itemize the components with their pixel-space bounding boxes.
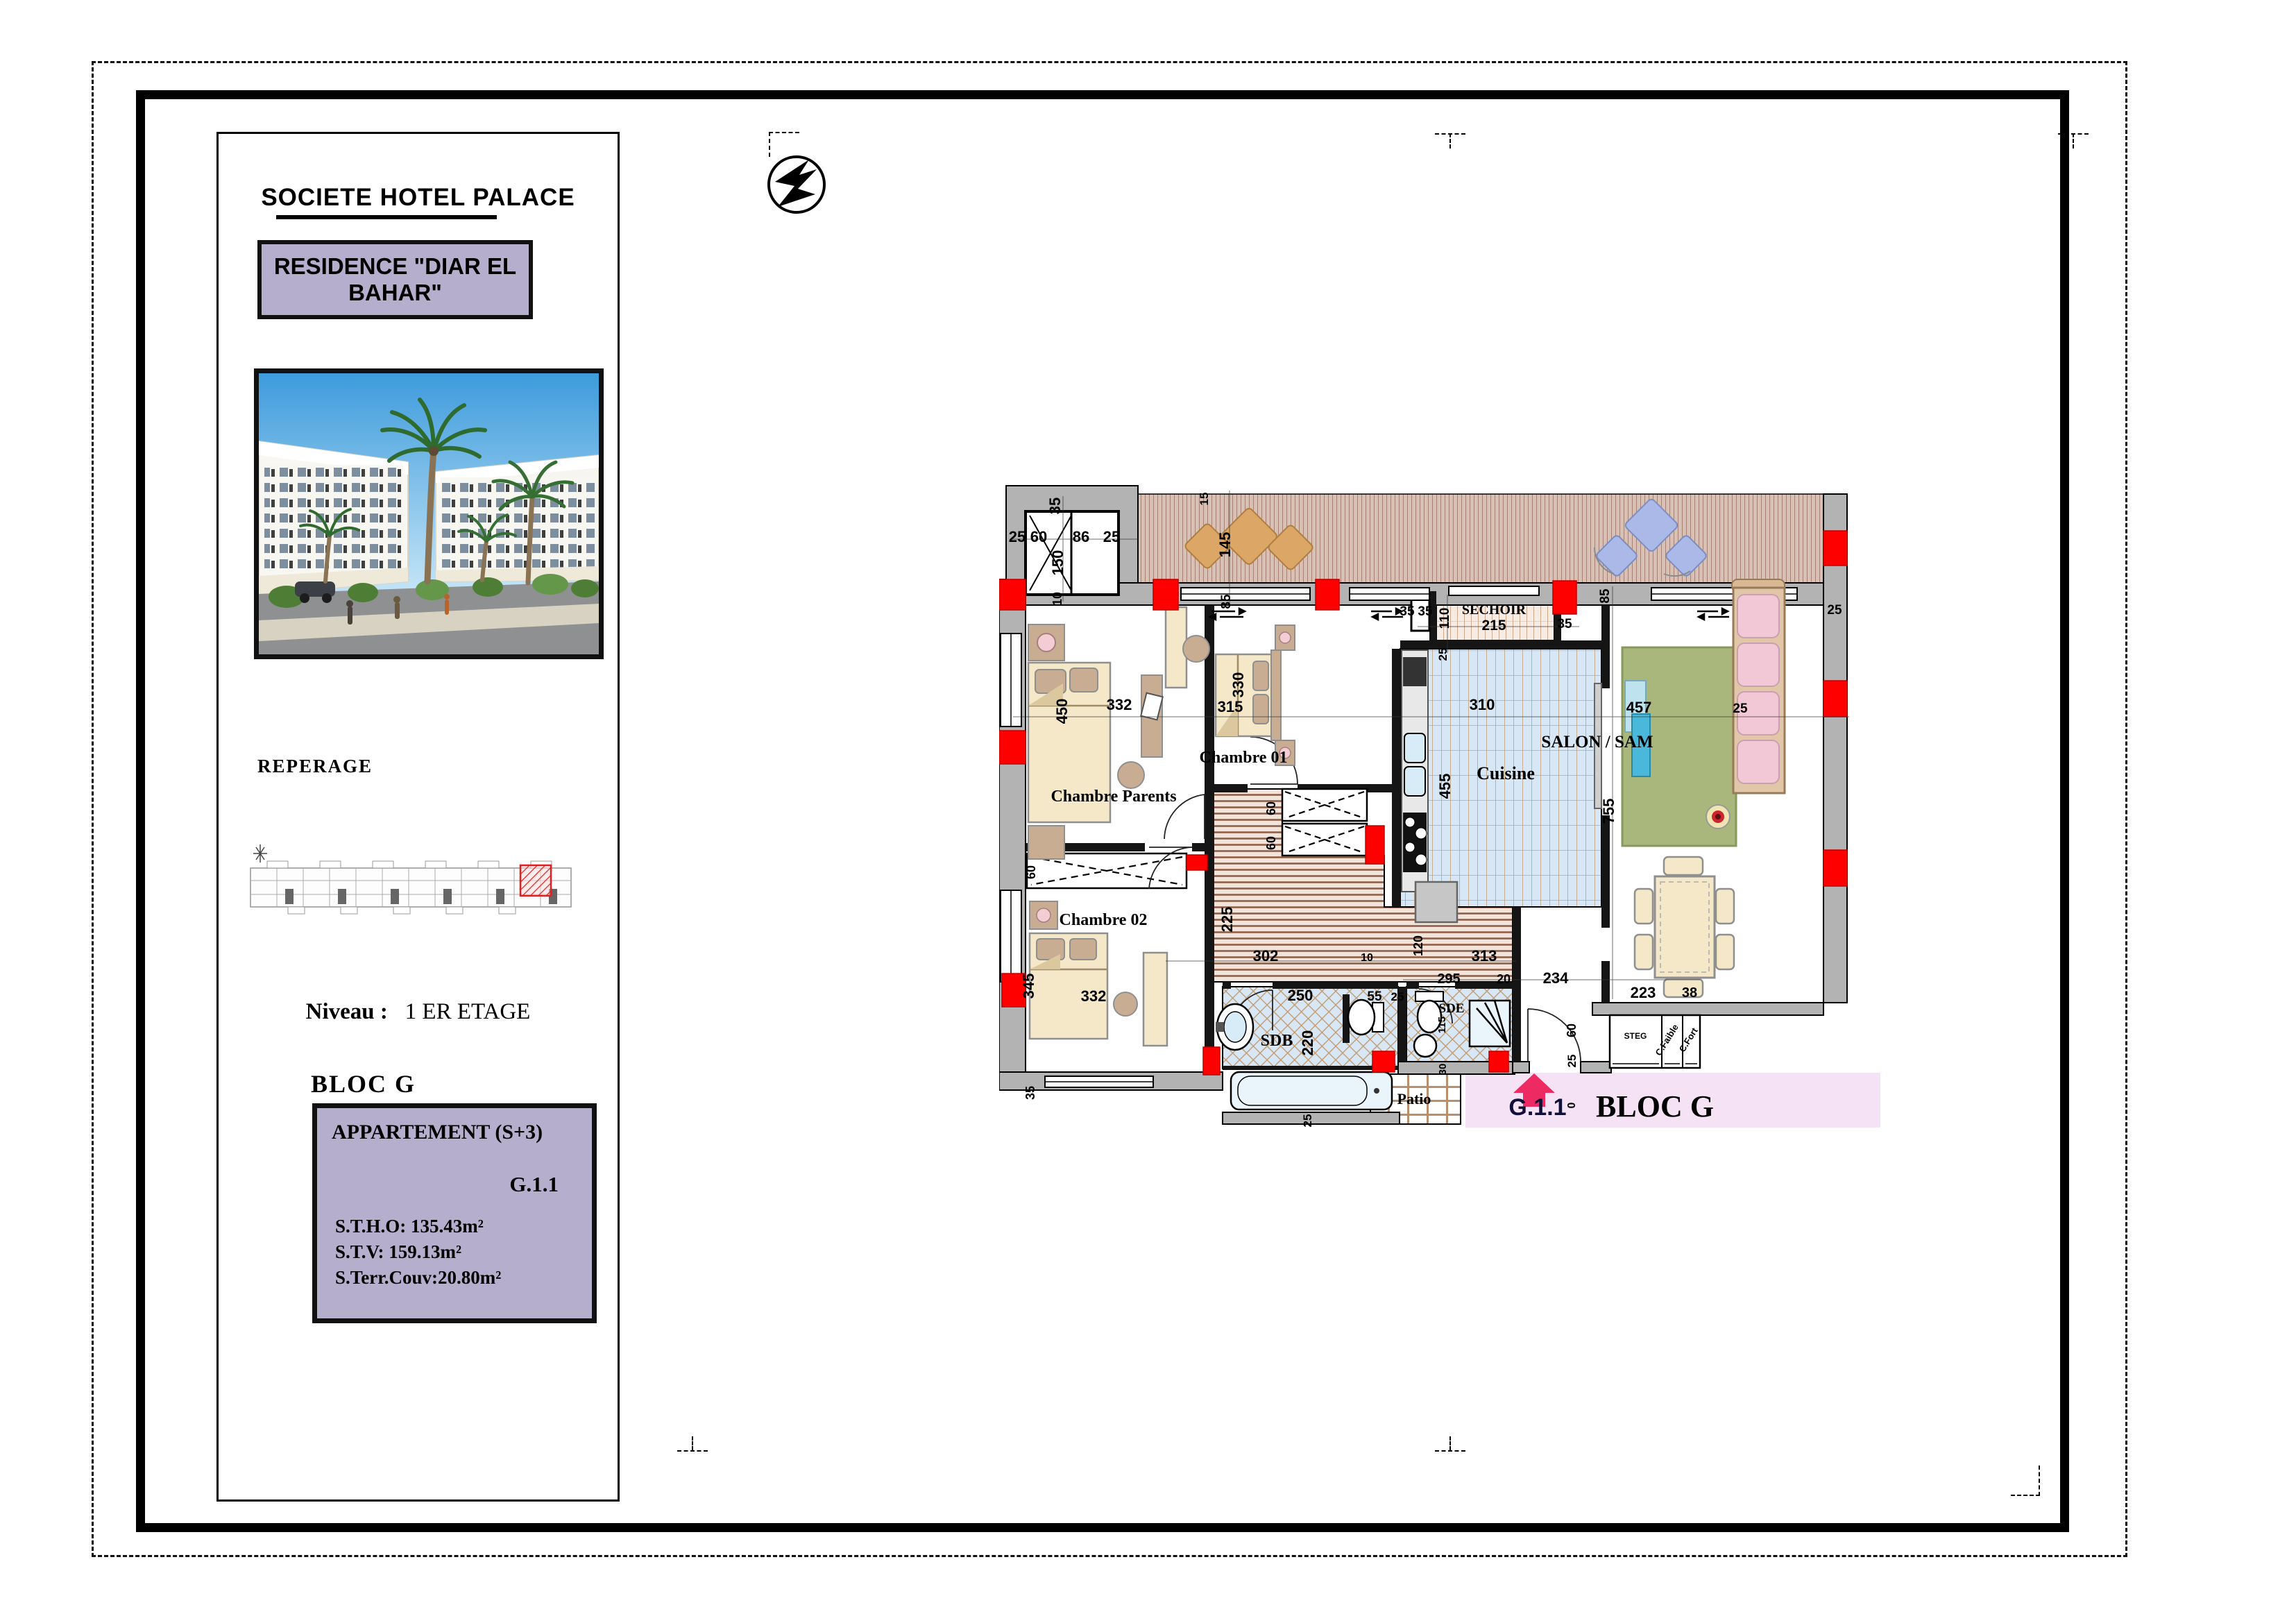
drawing-sheet: SOCIETE HOTEL PALACE RESIDENCE "DIAR EL …: [0, 0, 2296, 1623]
apartment-stv: S.T.V: 159.13m²: [335, 1239, 501, 1265]
kitchen-appliance: [1403, 657, 1427, 686]
nightstand: [1028, 826, 1064, 859]
building-left: [259, 441, 408, 594]
plan-label: 25: [1301, 1114, 1314, 1128]
plan-label: 225: [1218, 907, 1236, 933]
salon-furniture: [1622, 579, 1785, 997]
plan-label: 60: [1264, 801, 1278, 815]
plan-label: 85: [1598, 588, 1613, 604]
title-panel: SOCIETE HOTEL PALACE RESIDENCE "DIAR EL …: [216, 132, 620, 1502]
plan-label: Patio: [1397, 1090, 1431, 1107]
dining-set: [1635, 857, 1734, 997]
plan-label: 457: [1626, 699, 1652, 716]
plan-label: 295: [1437, 971, 1460, 987]
plan-label: 35: [1400, 604, 1415, 619]
reg-mark-bottom-left: [677, 1450, 708, 1452]
plan-label: 332: [1081, 987, 1107, 1005]
north-compass-icon: [763, 151, 830, 218]
plan-label: 86: [1073, 528, 1089, 545]
building-rendering-art: [259, 373, 599, 654]
wardrobe: [1143, 953, 1167, 1046]
niveau-value: 1 ER ETAGE: [405, 999, 531, 1024]
plan-label: 455: [1436, 774, 1454, 799]
plan-label: SDE: [1439, 1001, 1465, 1016]
reg-mark-bottom-mid: [1435, 1450, 1465, 1452]
plan-label: 450: [1053, 699, 1071, 724]
floor-plan: Chambre ParentsChambre 01Chambre 02Cuisi…: [999, 475, 1880, 1128]
plan-label: 330: [1230, 672, 1247, 698]
wall-east: [1823, 494, 1847, 1003]
apartment-stho: S.T.H.O: 135.43m²: [335, 1214, 501, 1239]
round-sink: [1414, 1035, 1436, 1057]
plan-label: 20: [1497, 972, 1511, 986]
strip-buildings: [250, 861, 571, 914]
reg-mark-bottom-mid-tick: [1449, 1436, 1451, 1450]
plan-label: 332: [1107, 696, 1132, 713]
wall-salon-south: [1592, 1003, 1823, 1015]
plan-label: 60: [1264, 836, 1278, 850]
plan-label: STEG: [1624, 1031, 1647, 1041]
apartment-info-box: APPARTEMENT (S+3) G.1.1 S.T.H.O: 135.43m…: [312, 1103, 597, 1323]
plan-label: 315: [1218, 698, 1243, 715]
plan-label: 60: [1565, 1023, 1579, 1037]
plan-label: 35: [1046, 498, 1064, 514]
apartment-code: G.1.1: [509, 1172, 559, 1197]
chair: [1114, 992, 1137, 1016]
toilet: [1348, 1000, 1375, 1035]
apartment-title: APPARTEMENT (S+3): [332, 1121, 543, 1144]
plan-label: 85: [1219, 594, 1234, 609]
fridge: [1415, 882, 1457, 922]
chambre-parents-furniture: [1028, 624, 1163, 859]
niveau-line: Niveau : 1 ER ETAGE: [219, 999, 618, 1025]
dining-table: [1655, 876, 1715, 978]
plan-label: 220: [1299, 1030, 1316, 1056]
plan-label: 215: [1481, 618, 1506, 634]
plan-label: 25: [1009, 528, 1026, 545]
plan-label: 25: [1391, 990, 1404, 1003]
plan-label: 15: [1198, 493, 1211, 506]
plan-label: 110: [1438, 608, 1452, 629]
bloc-label: BLOC G: [311, 1069, 416, 1098]
plan-label: 35: [1557, 617, 1572, 631]
plan-label: 35: [1418, 604, 1433, 619]
plan-label: Chambre 02: [1060, 911, 1148, 929]
plan-label: 25: [1103, 528, 1120, 545]
plan-label: 345: [1020, 974, 1037, 999]
company-underline: [276, 215, 497, 219]
plan-label: 310: [1470, 696, 1495, 713]
plan-label: SDB: [1261, 1032, 1293, 1050]
niveau-label: Niveau :: [306, 999, 388, 1024]
plan-label: 60: [1030, 528, 1047, 545]
reperage-strip-art: [246, 842, 579, 921]
bathtub: [1231, 1072, 1392, 1110]
strip-highlight-unit: [520, 865, 551, 896]
plan-label: 120: [1411, 935, 1425, 956]
plan-label: 25: [1733, 702, 1748, 716]
plan-label: Cuisine: [1477, 763, 1535, 783]
technical-shaft: [1026, 511, 1119, 595]
plan-label: 0: [1566, 1102, 1578, 1108]
reg-mark-top-mid-tick: [1449, 133, 1451, 148]
plan-label: 55: [1367, 989, 1382, 1004]
plan-label: G.1.1: [1508, 1094, 1566, 1121]
apartment-sterr: S.Terr.Couv:20.80m²: [335, 1265, 501, 1291]
plan-label: 10: [1051, 592, 1064, 606]
kitchen-sink: [1404, 767, 1425, 796]
plan-label: 755: [1600, 799, 1617, 824]
reperage-strip: [246, 842, 579, 921]
reg-mark-bottom-left-tick: [692, 1436, 693, 1450]
plan-label: 223: [1631, 984, 1656, 1001]
chair: [1118, 762, 1144, 788]
reg-mark-top-right-tick: [2073, 133, 2074, 148]
strip-north-mark: [253, 844, 267, 863]
kitchen-sink: [1404, 733, 1425, 763]
plan-label: 145: [1216, 532, 1234, 558]
plan-label: 25: [1827, 603, 1842, 618]
plan-label: 38: [1682, 985, 1697, 1001]
plan-label: 30: [1437, 1064, 1449, 1076]
plan-label: SECHOIR: [1462, 602, 1527, 618]
wall-entry-left: [1513, 1062, 1529, 1073]
residence-title-box: RESIDENCE "DIAR EL BAHAR": [257, 240, 533, 319]
chair: [1183, 636, 1209, 662]
company-name: SOCIETE HOTEL PALACE: [219, 184, 618, 212]
wall-entry-right: [1581, 1062, 1611, 1073]
plan-label: 234: [1543, 969, 1569, 987]
plan-label: 302: [1253, 947, 1279, 965]
plan-label: 115: [1436, 1017, 1448, 1033]
plan-label: 250: [1288, 987, 1313, 1004]
plan-label: 60: [1024, 865, 1038, 879]
plan-label: SALON / SAM: [1541, 733, 1653, 751]
plan-label: 35: [1023, 1086, 1037, 1100]
plan-label: Chambre 01: [1200, 749, 1288, 767]
reg-mark-bottom-right: [2011, 1465, 2040, 1496]
plan-label: 10: [1361, 952, 1373, 964]
plan-label: 25: [1565, 1055, 1579, 1068]
plan-label: BLOC G: [1596, 1089, 1714, 1123]
plan-label: Chambre Parents: [1051, 788, 1176, 806]
plan-label: 150: [1049, 550, 1066, 576]
plan-label: 25: [1436, 648, 1449, 661]
reperage-label: REPERAGE: [257, 756, 373, 777]
plan-label: 313: [1472, 947, 1497, 965]
building-rendering: [254, 368, 604, 659]
building-right: [436, 455, 599, 581]
